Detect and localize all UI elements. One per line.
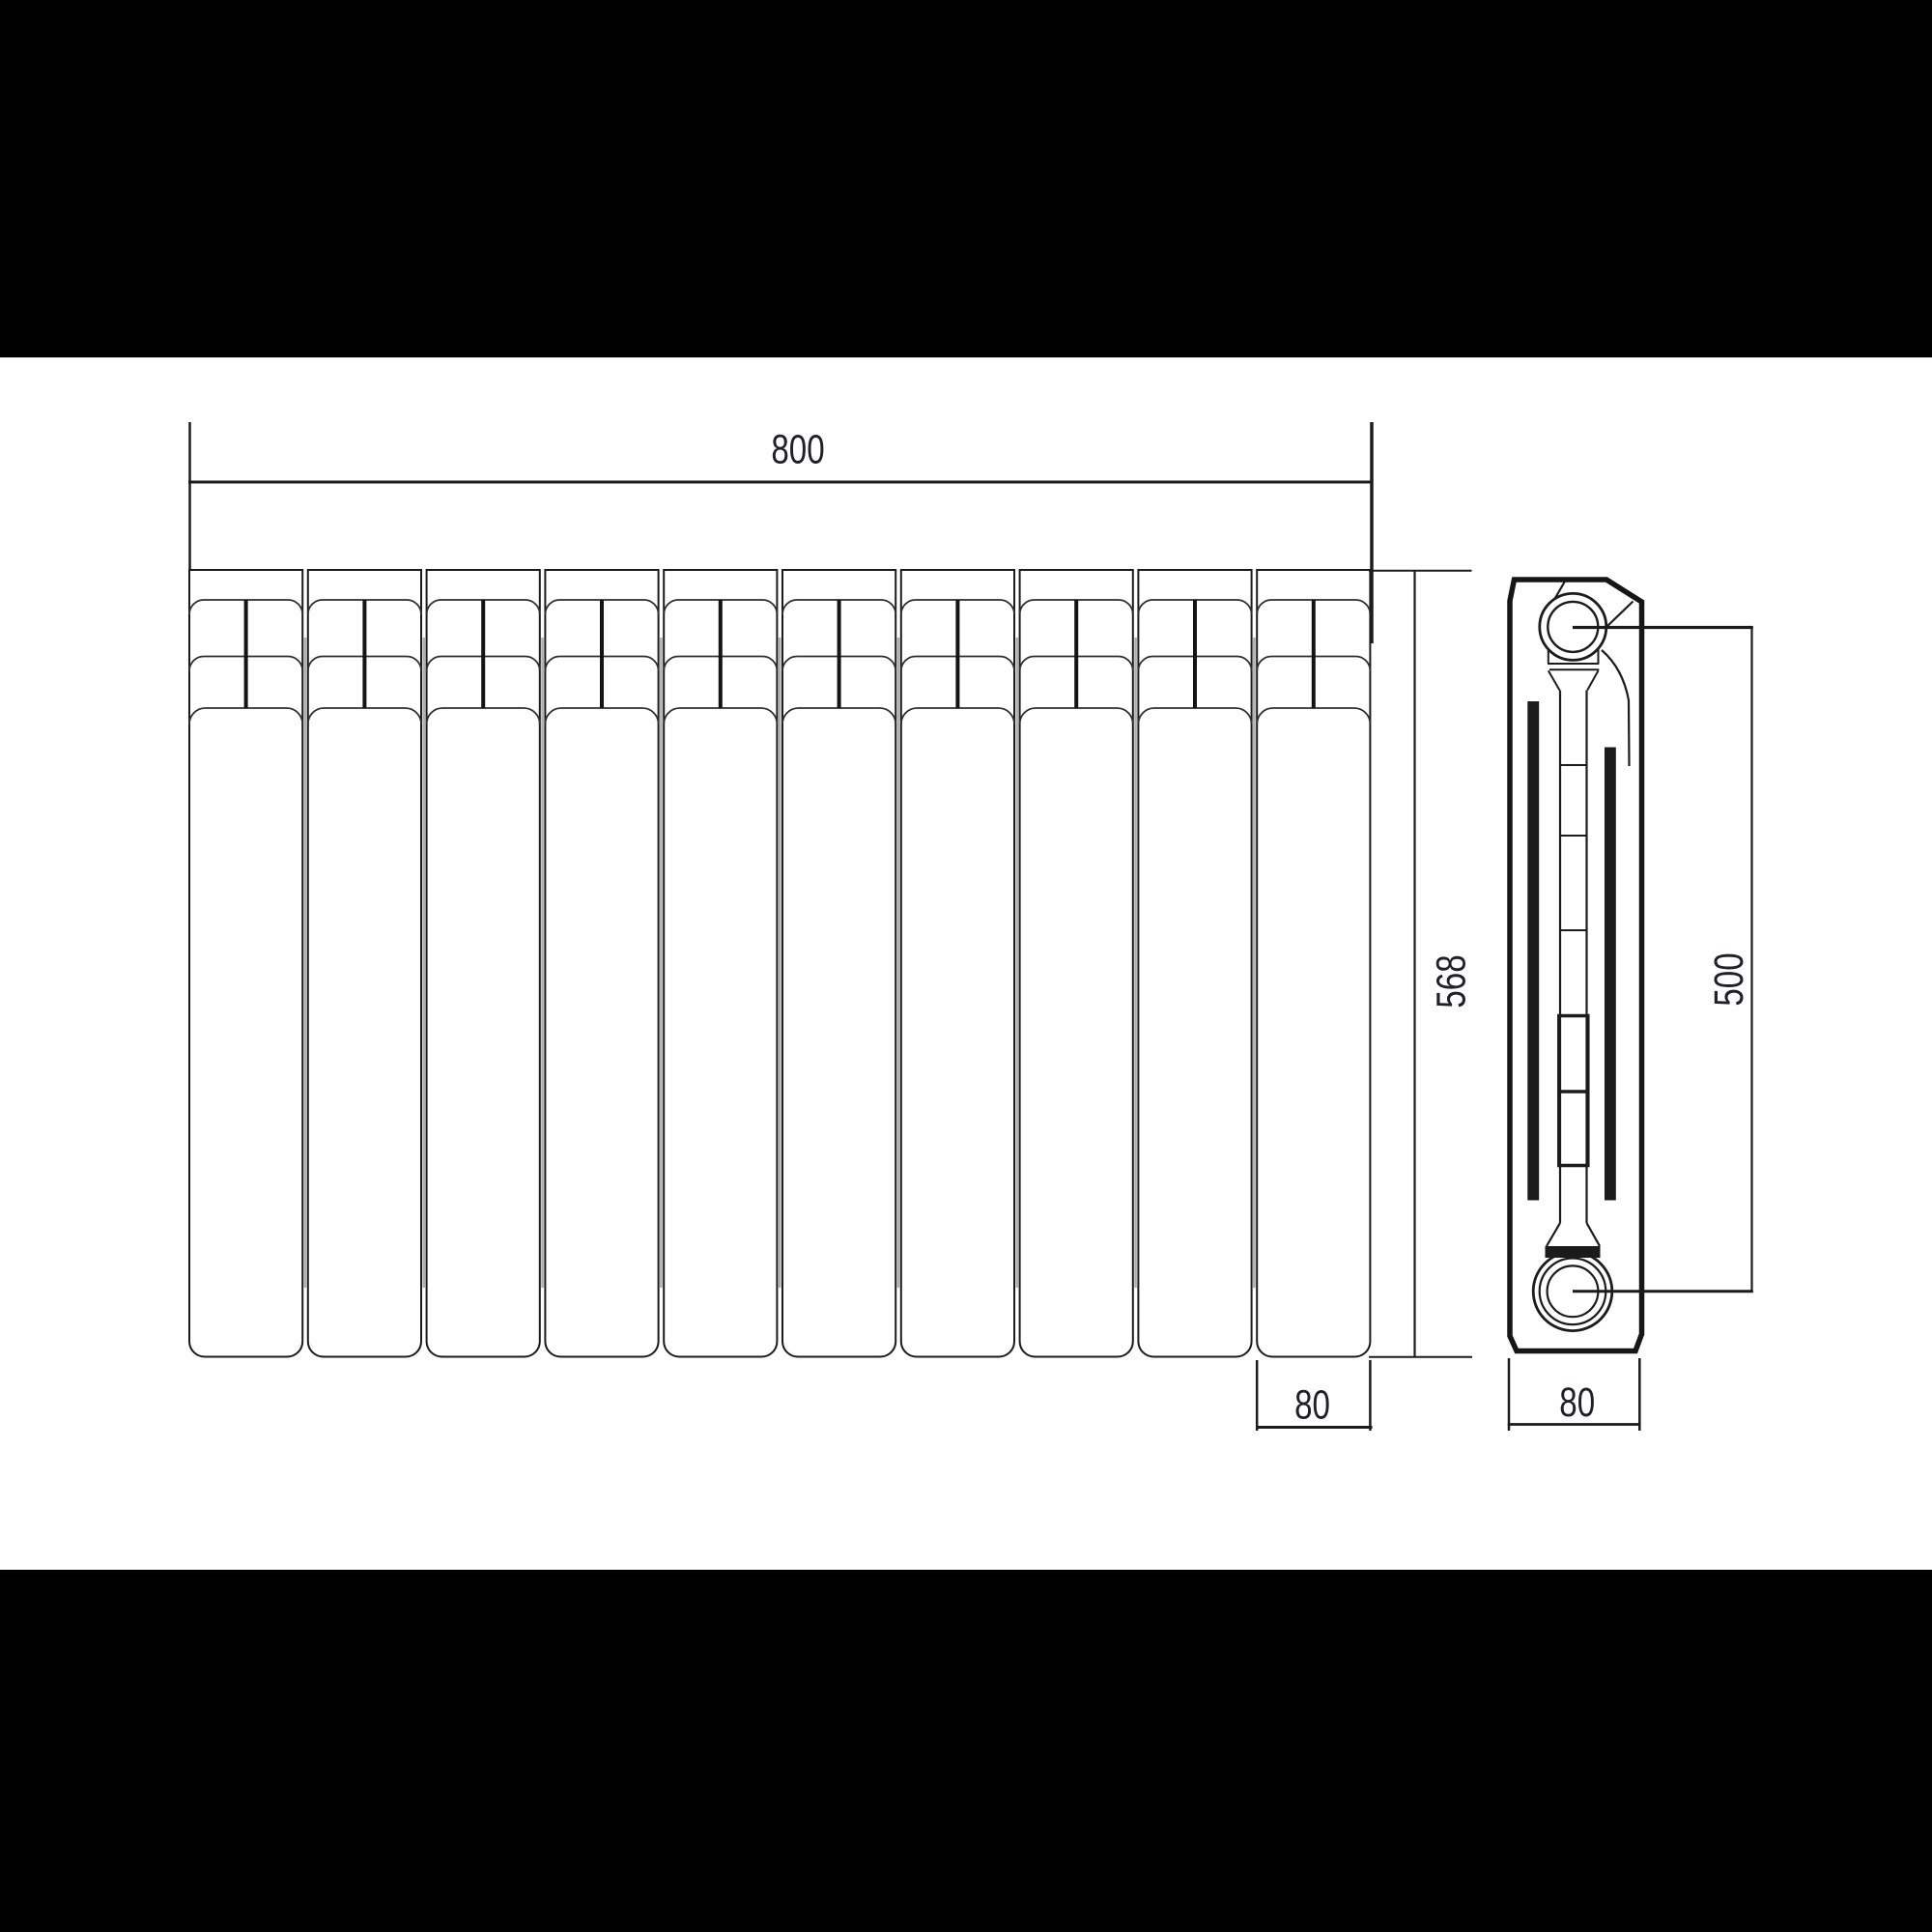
svg-text:800: 800 — [771, 428, 824, 473]
svg-text:500: 500 — [1707, 952, 1752, 1006]
svg-text:80: 80 — [1559, 1380, 1595, 1426]
svg-text:80: 80 — [1294, 1383, 1330, 1429]
svg-text:568: 568 — [1430, 954, 1475, 1008]
